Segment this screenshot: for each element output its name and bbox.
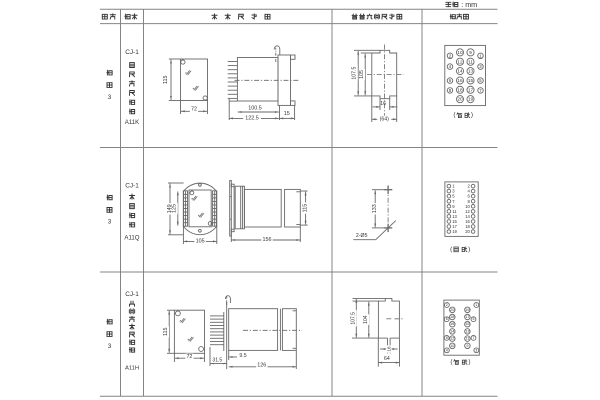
svg-text:122.5: 122.5 <box>245 115 259 121</box>
svg-text:9: 9 <box>466 344 468 348</box>
svg-text:19: 19 <box>452 229 457 234</box>
svg-text:9.5: 9.5 <box>239 353 246 359</box>
svg-text:): ) <box>468 246 470 253</box>
svg-text:18: 18 <box>457 87 463 92</box>
svg-text:16: 16 <box>380 101 386 107</box>
svg-text:64: 64 <box>384 356 390 362</box>
svg-text:9: 9 <box>469 50 472 55</box>
svg-text:31.5: 31.5 <box>212 358 222 364</box>
svg-text:100.5: 100.5 <box>248 106 262 112</box>
svg-text:10: 10 <box>450 344 454 348</box>
svg-text:107.5: 107.5 <box>351 312 357 325</box>
svg-text:: mm: : mm <box>461 0 477 9</box>
svg-text:11: 11 <box>465 337 469 341</box>
svg-text:12: 12 <box>450 337 454 341</box>
svg-text:8: 8 <box>446 336 448 340</box>
svg-text:156: 156 <box>263 237 272 243</box>
svg-text:115: 115 <box>163 327 169 336</box>
svg-text:17: 17 <box>468 87 474 92</box>
svg-text:19: 19 <box>468 97 474 102</box>
svg-text:15: 15 <box>468 78 474 83</box>
svg-text:13: 13 <box>465 329 469 333</box>
svg-text:(64): (64) <box>380 116 389 122</box>
svg-text:16: 16 <box>386 346 391 352</box>
svg-text:11: 11 <box>468 59 473 64</box>
svg-text:13: 13 <box>468 69 474 74</box>
svg-text:115: 115 <box>163 75 169 84</box>
svg-text:6: 6 <box>446 317 448 321</box>
svg-text:20: 20 <box>465 229 470 234</box>
svg-text:3: 3 <box>108 343 112 350</box>
svg-text:20: 20 <box>450 308 454 312</box>
svg-text:15: 15 <box>284 111 290 117</box>
svg-text:CJ-1: CJ-1 <box>125 49 139 56</box>
svg-text:10: 10 <box>457 50 463 55</box>
svg-text:18: 18 <box>450 315 454 319</box>
svg-text:): ) <box>471 112 473 119</box>
svg-text:CJ-1: CJ-1 <box>125 183 139 190</box>
svg-text:72: 72 <box>191 106 197 112</box>
svg-text:A11K: A11K <box>125 119 139 126</box>
svg-text:14: 14 <box>450 329 454 333</box>
svg-text:105: 105 <box>196 238 205 244</box>
svg-text:4: 4 <box>446 348 448 352</box>
svg-text:3: 3 <box>108 94 112 101</box>
svg-text:7: 7 <box>473 336 475 340</box>
svg-text:72: 72 <box>186 354 192 360</box>
svg-text:1: 1 <box>475 303 477 307</box>
svg-text:A11Q: A11Q <box>124 234 139 241</box>
svg-text:105: 105 <box>359 70 365 79</box>
svg-text:A11H: A11H <box>125 365 139 371</box>
svg-text:115: 115 <box>303 204 309 213</box>
svg-text:133: 133 <box>372 204 378 213</box>
svg-text:107.5: 107.5 <box>352 66 358 79</box>
svg-text:17: 17 <box>465 315 469 319</box>
svg-text:5: 5 <box>473 317 475 321</box>
svg-text:16: 16 <box>450 322 454 326</box>
svg-text:15: 15 <box>465 322 469 326</box>
svg-text:14: 14 <box>457 69 463 74</box>
svg-text:): ) <box>468 359 470 366</box>
svg-text:12: 12 <box>457 59 463 64</box>
svg-text:2-Ø5: 2-Ø5 <box>356 233 368 239</box>
svg-text:125: 125 <box>172 204 178 213</box>
svg-text:3: 3 <box>475 348 477 352</box>
svg-text:CJ-1: CJ-1 <box>125 291 139 298</box>
svg-text:3: 3 <box>108 219 112 226</box>
svg-text:20: 20 <box>457 97 463 102</box>
svg-text:19: 19 <box>465 308 469 312</box>
svg-text:126: 126 <box>257 363 266 369</box>
svg-text:104: 104 <box>363 315 369 324</box>
svg-text:2: 2 <box>446 303 448 307</box>
svg-text:16: 16 <box>457 78 463 83</box>
